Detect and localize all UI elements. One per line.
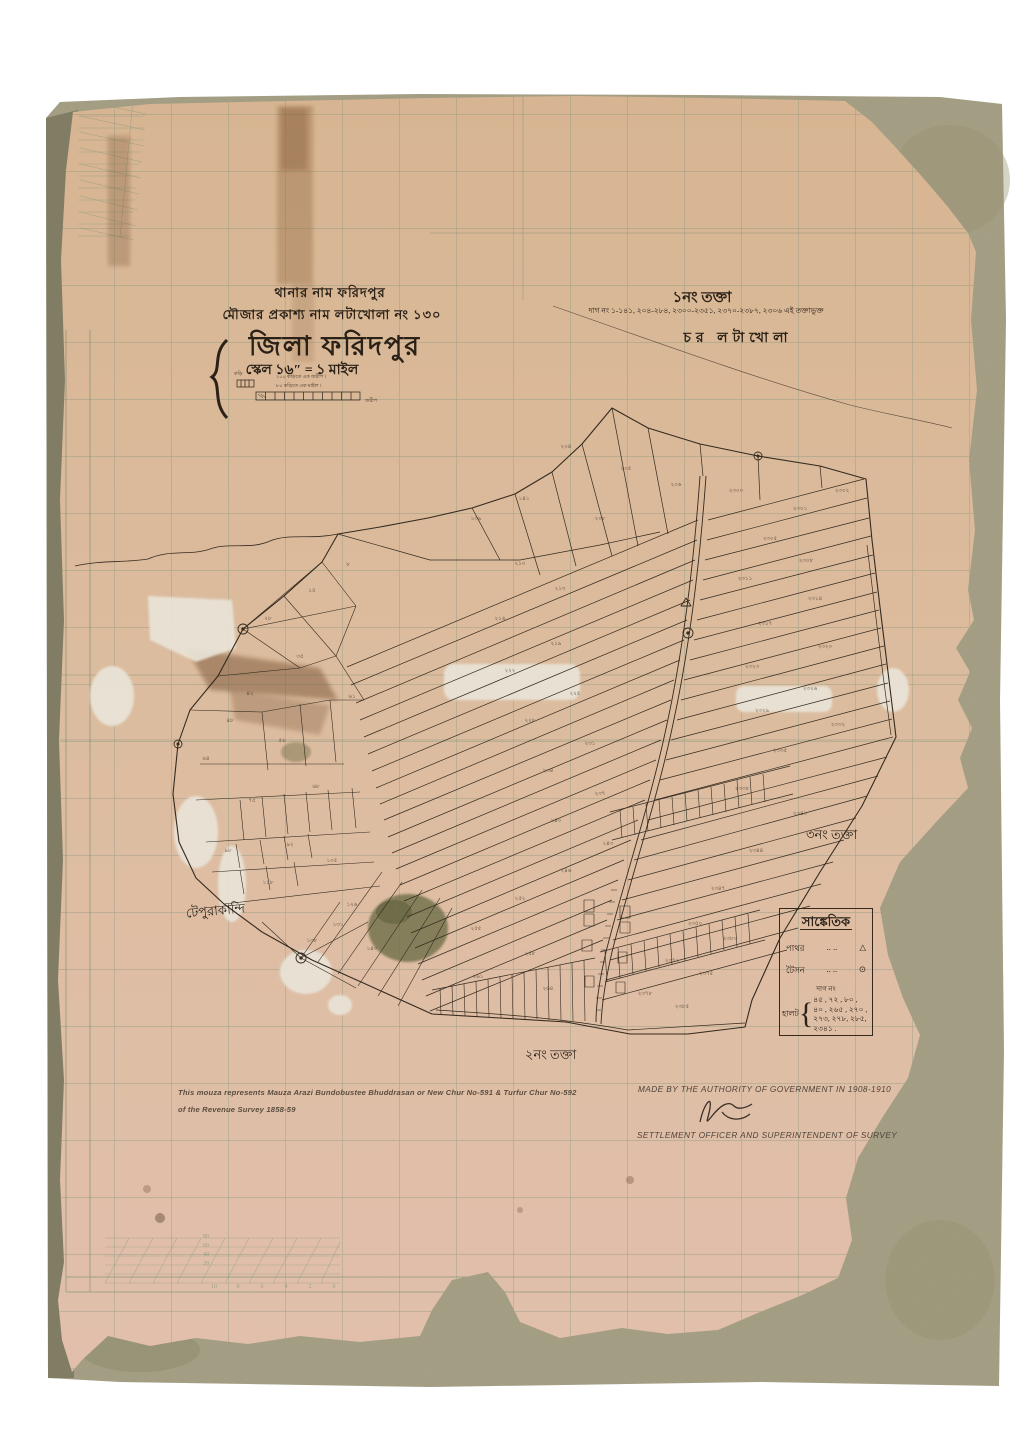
plot-number: ২৩২৩ — [745, 664, 759, 672]
plot-number: ১৪০ — [367, 946, 378, 954]
legend-row-stone: পাথর .. .. △ — [780, 942, 872, 956]
plot-number: ২৮ — [264, 616, 271, 624]
plot-number: ১১৮ — [263, 880, 274, 888]
plot-number: ২৩২০ — [818, 644, 832, 652]
margin-scale-number: 20 — [203, 1261, 209, 1267]
halot-numbers: ৪৫ , ৭২ , ৮০ , ৪০ , ২৬৫ , ২৭০ , ২৭৩, ২৭৮… — [813, 995, 867, 1033]
plot-number: ৯২ — [286, 842, 293, 850]
plot-number: ২৫৫ — [471, 926, 482, 934]
legend-row-station: টৈসন .. .. ⊙ — [780, 964, 872, 978]
plot-number: ২০৪ — [561, 444, 572, 452]
revenue-survey-note-line2: of the Revenue Survey 1858-59 — [178, 1105, 296, 1114]
legend-dots: .. .. — [827, 964, 838, 978]
plot-number: ৫৬ — [278, 738, 285, 746]
char-name-label: চর লটাখোলা — [683, 326, 792, 350]
plot-number: ২৩৭২ — [665, 958, 679, 966]
margin-scale-number: 6 — [261, 1284, 264, 1290]
scale-bar-end-label: জরীপ — [365, 398, 377, 406]
legend-halot-group: হালট { ৪৫ , ৭২ , ৮০ , ৪০ , ২৬৫ , ২৭০ , ২… — [780, 995, 872, 1033]
revenue-survey-note-line1: This mouza represents Mauza Arazi Bundob… — [178, 1088, 577, 1097]
plot-number: ২০৫ — [621, 466, 632, 474]
scale-unit-small-label: কড়ি — [234, 371, 243, 379]
plot-number: ৮ — [346, 562, 350, 570]
plot-number: ২৩৭৮ — [638, 991, 652, 999]
legend-station-label: টৈসন — [786, 964, 805, 978]
plot-number: ২৩১৭ — [758, 621, 772, 629]
halot-brace: { — [799, 999, 813, 1029]
plot-number: ২২৫ — [570, 691, 581, 699]
plot-number: ২৪৬ — [561, 868, 572, 876]
plot-number: ২৩৭৫ — [699, 971, 713, 979]
plot-number: ১৪১ — [519, 496, 530, 504]
plot-number: ২১৬ — [495, 616, 506, 624]
plot-number: ৯৮ — [224, 848, 231, 856]
plot-number: ২৩০৫ — [763, 536, 777, 544]
plot-number: ৬৪ — [202, 756, 209, 764]
plot-number: ২৫২ — [515, 896, 526, 904]
plot-number: ২২৮ — [525, 718, 536, 726]
scanned-map-page: থানার নাম ফরিদপুর মৌজার প্রকাশ্য নাম লটা… — [0, 0, 1024, 1449]
plot-number: ২৩২৯ — [755, 708, 769, 716]
mouza-name-line: মৌজার প্রকাশ্য নাম লটাখোলা নং ১৩০ — [222, 306, 441, 327]
plot-number: ২২২ — [505, 668, 516, 676]
plot-number: ২৩৭ — [595, 791, 606, 799]
authority-line: MADE BY THE AUTHORITY OF GOVERNMENT IN 1… — [638, 1084, 891, 1094]
plot-number: ২৩৩৮ — [735, 786, 749, 794]
dag-range-line: দাগ নং ১-১৪১, ২০৪-২৮৪, ২৩০০-২৩৫১, ২৩৭০-২… — [589, 306, 824, 318]
sheet3-label: ৩নং তক্তা — [806, 826, 857, 847]
legend-stone-label: পাথর — [786, 942, 804, 956]
plot-number: ২১৩ — [555, 586, 566, 594]
legend-title: সাঙ্কেতিক — [780, 913, 872, 934]
margin-scale-number: 80 — [203, 1234, 209, 1240]
stone-symbol-icon: △ — [859, 942, 866, 956]
plot-number: ২৬৪ — [543, 986, 554, 994]
margin-scale-number: 60 — [203, 1243, 209, 1249]
station-symbol-icon: ⊙ — [859, 964, 866, 978]
plot-number: ৭৫ — [248, 798, 255, 806]
legend-dots: .. .. — [827, 942, 838, 956]
scale-note-top: ১০০ কড়িতে এক জরীপ । — [276, 374, 326, 382]
plot-number: ২৩৪৭ — [711, 886, 725, 894]
sheet2-label: ২নং তক্তা — [525, 1046, 576, 1067]
plot-number: ২৩৪৪ — [749, 848, 763, 856]
margin-scale-number: 40 — [203, 1252, 209, 1258]
plot-number: ২৩৩২ — [831, 722, 845, 730]
plot-number: ২৩০১ — [793, 506, 807, 514]
plot-number: ২০৮ — [595, 516, 606, 524]
margin-scale-number: 10 — [211, 1284, 217, 1290]
plot-number: ২৪০ — [551, 818, 562, 826]
margin-scale-number: 4 — [285, 1284, 288, 1290]
legend-dag-heading: দাগ নং — [780, 983, 872, 995]
plot-number: ২৬১ — [473, 974, 484, 982]
plot-number: ১৫ — [308, 588, 315, 596]
plot-number: ২৩৪ — [543, 768, 554, 776]
plot-number: ২৩০৮ — [799, 558, 813, 566]
margin-scale-number: 2 — [309, 1284, 312, 1290]
legend-box: সাঙ্কেতিক পাথর .. .. △ টৈসন .. .. ⊙ দাগ … — [779, 908, 873, 1036]
halot-label: হালট — [782, 1008, 799, 1021]
plot-number: ২৩৫০ — [688, 921, 702, 929]
plot-number: ১২৬ — [347, 902, 358, 910]
plot-number: ২৩১ — [585, 741, 596, 749]
plot-number: ২১৯ — [551, 641, 562, 649]
plot-number: ২৩৩৫ — [773, 748, 787, 756]
plot-number: ২৩৮৫ — [675, 1004, 689, 1012]
plot-number: ২৩০২ — [835, 488, 849, 496]
thana-name-line: থানার নাম ফরিদপুর — [274, 284, 385, 305]
plot-number: ২৩০০ — [729, 488, 743, 496]
plot-number: ২৩১১ — [738, 576, 752, 584]
plot-number: ৬৮ — [312, 784, 319, 792]
plot-number: ১০৫ — [327, 858, 338, 866]
plot-number: ২৩৮০ — [723, 936, 737, 944]
plot-number: ৪৮ — [226, 718, 233, 726]
scale-note-bottom: ৮০ কড়িতে এক মাইল । — [276, 383, 321, 391]
plot-number: ১৩৯ — [471, 516, 482, 524]
plot-number: ১৩১ — [333, 922, 344, 930]
plot-number: ২৩৪১ — [793, 811, 807, 819]
plot-number: ১৩৮ — [307, 938, 318, 946]
plot-number: ৩৫ — [296, 654, 303, 662]
plot-number: ২১০ — [515, 561, 526, 569]
plot-number: ৬১ — [348, 694, 355, 702]
margin-scale-number: 0 — [333, 1284, 336, 1290]
plot-number: ২৪৩ — [603, 841, 614, 849]
plot-number: ৪২ — [246, 691, 253, 699]
plot-number: ২৩২৬ — [803, 686, 817, 694]
plot-number: ২০৬ — [671, 482, 682, 490]
plot-number: ২৩১৪ — [808, 596, 822, 604]
officer-line: SETTLEMENT OFFICER AND SUPERINTENDENT OF… — [637, 1130, 897, 1140]
plot-number: ২৫৮ — [525, 951, 536, 959]
map-artwork — [0, 0, 1024, 1449]
margin-scale-number: 8 — [237, 1284, 240, 1290]
